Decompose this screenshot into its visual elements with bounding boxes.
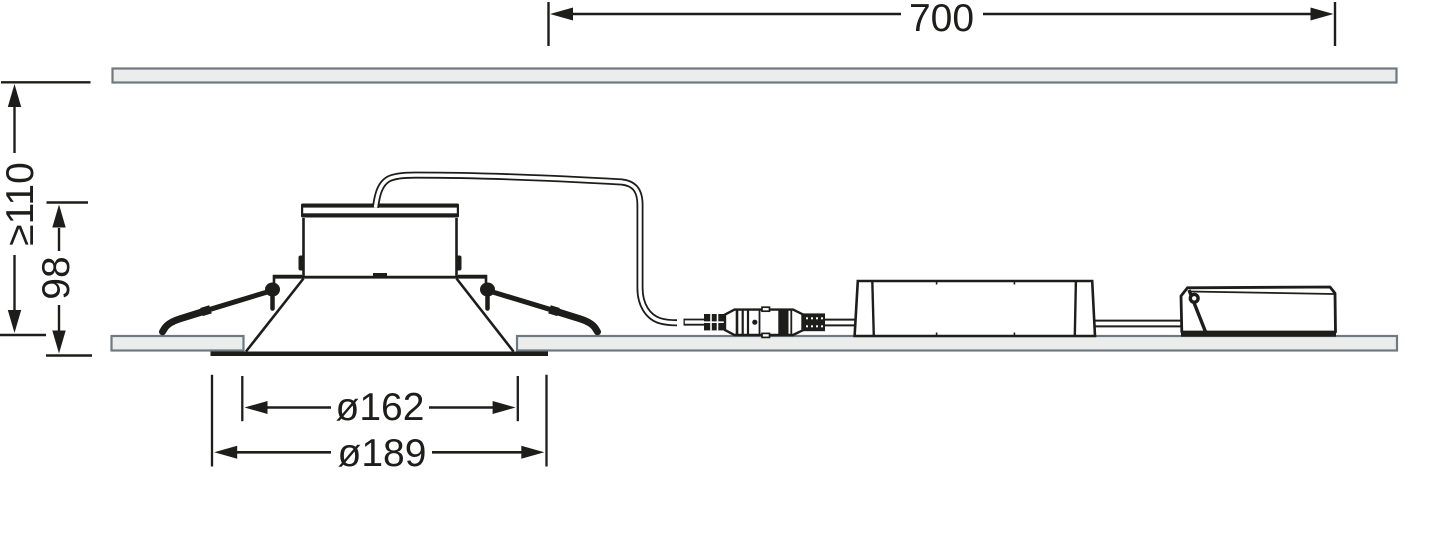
svg-text:700: 700 xyxy=(909,0,974,40)
svg-text:≥110: ≥110 xyxy=(0,162,42,246)
svg-text:ø189: ø189 xyxy=(338,432,427,475)
svg-text:ø162: ø162 xyxy=(336,386,425,429)
svg-text:98: 98 xyxy=(35,256,78,299)
